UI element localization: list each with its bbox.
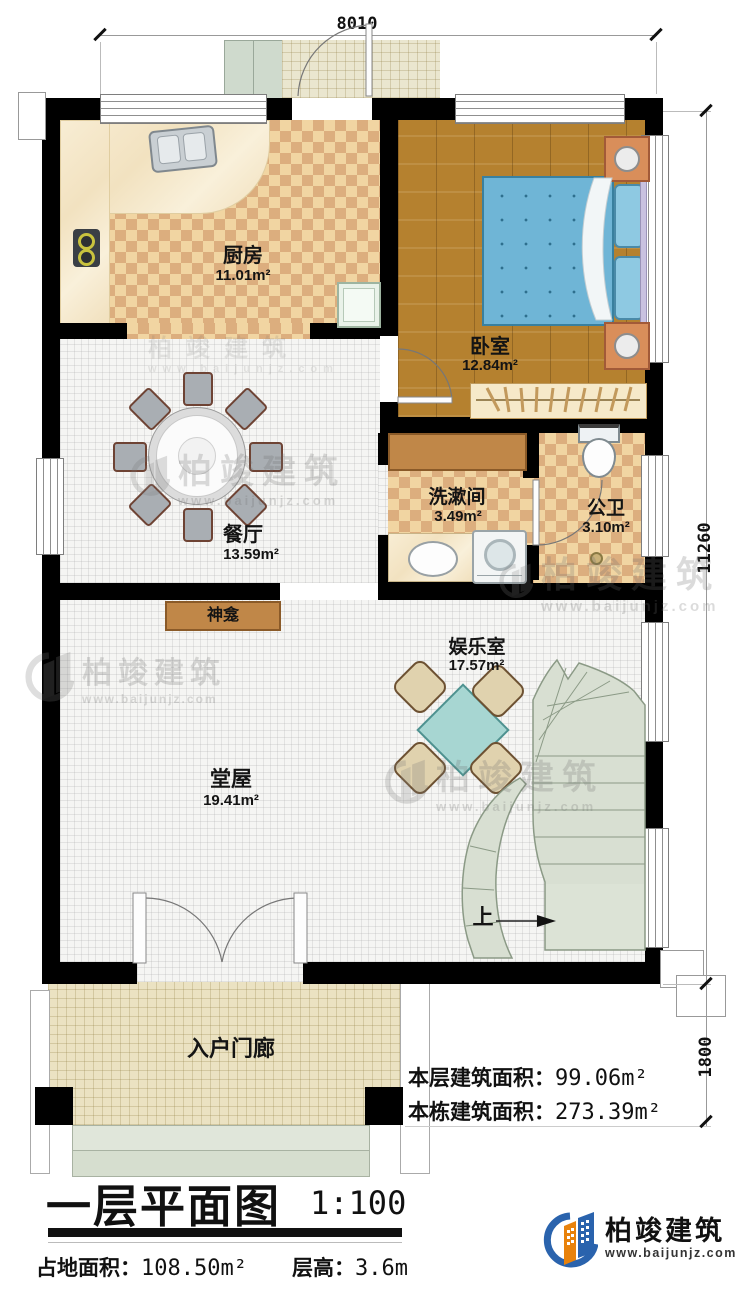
- wardrobe: [470, 383, 647, 419]
- washbasin: [408, 541, 458, 577]
- sill-bottom-right: [676, 975, 726, 1017]
- nightstand-lamp: [604, 322, 650, 370]
- toilet-area: 3.10m²: [563, 520, 649, 536]
- brand-logo-icon: [540, 1208, 598, 1272]
- wall-washroom-left-stub-top: [378, 433, 388, 465]
- window-stair-right-lower: [641, 828, 669, 948]
- window-dining-left: [36, 458, 64, 555]
- dim-top-line: [100, 35, 657, 36]
- floorplan-canvas: 8010: [0, 0, 750, 1290]
- building-area-label: 本栋建筑面积：: [408, 1101, 555, 1124]
- wall-kitchen-bottom-left: [60, 323, 127, 339]
- washing-machine: [472, 530, 527, 584]
- washroom-label: 洗漱间: [405, 488, 509, 508]
- dim-right-witness-low: [405, 1126, 711, 1127]
- title-underline: [48, 1228, 402, 1237]
- floor-area-label: 本层建筑面积：: [408, 1067, 555, 1090]
- bedroom-label: 卧室: [440, 337, 540, 358]
- hall-floor: [60, 600, 645, 962]
- porch-label: 入户门廊: [166, 1037, 296, 1060]
- washroom-area: 3.49m²: [408, 509, 508, 525]
- storey-height-value: 3.6m: [355, 1256, 408, 1281]
- entertainment-area: 17.57m²: [424, 658, 529, 674]
- dim-top-witness-left: [100, 42, 101, 94]
- floor-drain: [590, 552, 603, 565]
- wall-bottom-left: [42, 962, 137, 984]
- bedroom-area: 12.84m²: [440, 358, 540, 374]
- wall-washroom-left-stub-bottom: [378, 535, 388, 580]
- washroom-doorway-floor: [378, 465, 388, 535]
- dining-chair: [113, 442, 147, 472]
- title-scale: 1:100: [310, 1184, 406, 1222]
- porch-step: [72, 1125, 370, 1152]
- floor-area-stat: 本层建筑面积：99.06m²: [408, 1062, 648, 1092]
- storey-height-stat: 层高：3.6m: [292, 1252, 408, 1282]
- wall-toilet-bottom: [533, 583, 645, 600]
- brand-website: www.baijunjz.com: [605, 1245, 737, 1263]
- kitchen-sink: [148, 125, 218, 174]
- sill-top-left: [18, 92, 46, 140]
- brand-name: 柏竣建筑: [605, 1218, 737, 1245]
- wall-kitchen-bedroom-lower: [380, 402, 398, 433]
- back-porch-tiles: [282, 40, 440, 98]
- land-area-label: 占地面积：: [36, 1257, 141, 1280]
- dining-area: 13.59m²: [196, 547, 306, 563]
- toilet-label: 公卫: [566, 499, 646, 519]
- shrine: 神龛: [165, 601, 281, 631]
- window-bedroom-top: [455, 94, 625, 124]
- dining-label: 餐厅: [193, 525, 293, 546]
- hall-area: 19.41m²: [182, 793, 280, 809]
- window-stair-right-upper: [641, 622, 669, 742]
- floor-area-value: 99.06m²: [555, 1066, 648, 1091]
- dining-chair: [249, 442, 283, 472]
- dining-chair: [183, 372, 213, 406]
- nightstand-lamp: [604, 136, 650, 182]
- stairs-up-label: 上: [470, 907, 496, 929]
- building-area-stat: 本栋建筑面积：273.39m²: [408, 1096, 661, 1126]
- porch-side-strip-left: [30, 990, 50, 1174]
- dim-top-label: 8010: [300, 14, 414, 34]
- building-area-value: 273.39m²: [555, 1100, 661, 1125]
- dining-table-center: [178, 437, 216, 475]
- page-title: 一层平面图: [46, 1170, 281, 1235]
- dim-top-witness-right: [656, 42, 657, 94]
- title-thin-line: [48, 1242, 402, 1243]
- washroom-cabinet: [388, 433, 527, 471]
- brand-logo-text: 柏竣建筑 www.baijunjz.com: [605, 1218, 737, 1263]
- back-porch-slab: [253, 40, 284, 100]
- entertainment-label: 娱乐室: [427, 638, 527, 658]
- wall-kitchen-bedroom-upper: [380, 120, 398, 336]
- porch-pier-right: [365, 1087, 403, 1125]
- land-area-value: 108.50m²: [141, 1256, 247, 1281]
- kitchen-area: 11.01m²: [193, 268, 293, 284]
- dim-right-lower-label: 1800: [696, 1017, 716, 1097]
- gas-stove: [73, 229, 100, 267]
- storey-height-label: 层高：: [292, 1257, 355, 1280]
- kitchen-counter-left: [60, 120, 110, 325]
- entry-door-threshold: [137, 962, 303, 982]
- wall-bottom-right: [303, 962, 663, 984]
- bed-mattress: [482, 176, 614, 326]
- window-kitchen-top: [100, 94, 267, 124]
- bed-headboard: [640, 176, 647, 326]
- land-area-stat: 占地面积：108.50m²: [36, 1252, 247, 1282]
- dim-right-upper-label: 11260: [695, 503, 715, 593]
- brand-logo: 柏竣建筑 www.baijunjz.com: [540, 1208, 737, 1272]
- kitchen-label: 厨房: [193, 246, 293, 267]
- porch-pier-left: [35, 1087, 73, 1125]
- hall-label: 堂屋: [188, 769, 274, 791]
- back-porch-slab: [224, 40, 255, 100]
- kitchen-opening-floor: [127, 323, 310, 339]
- wall-dining-hall: [42, 583, 280, 600]
- fridge: [337, 282, 381, 328]
